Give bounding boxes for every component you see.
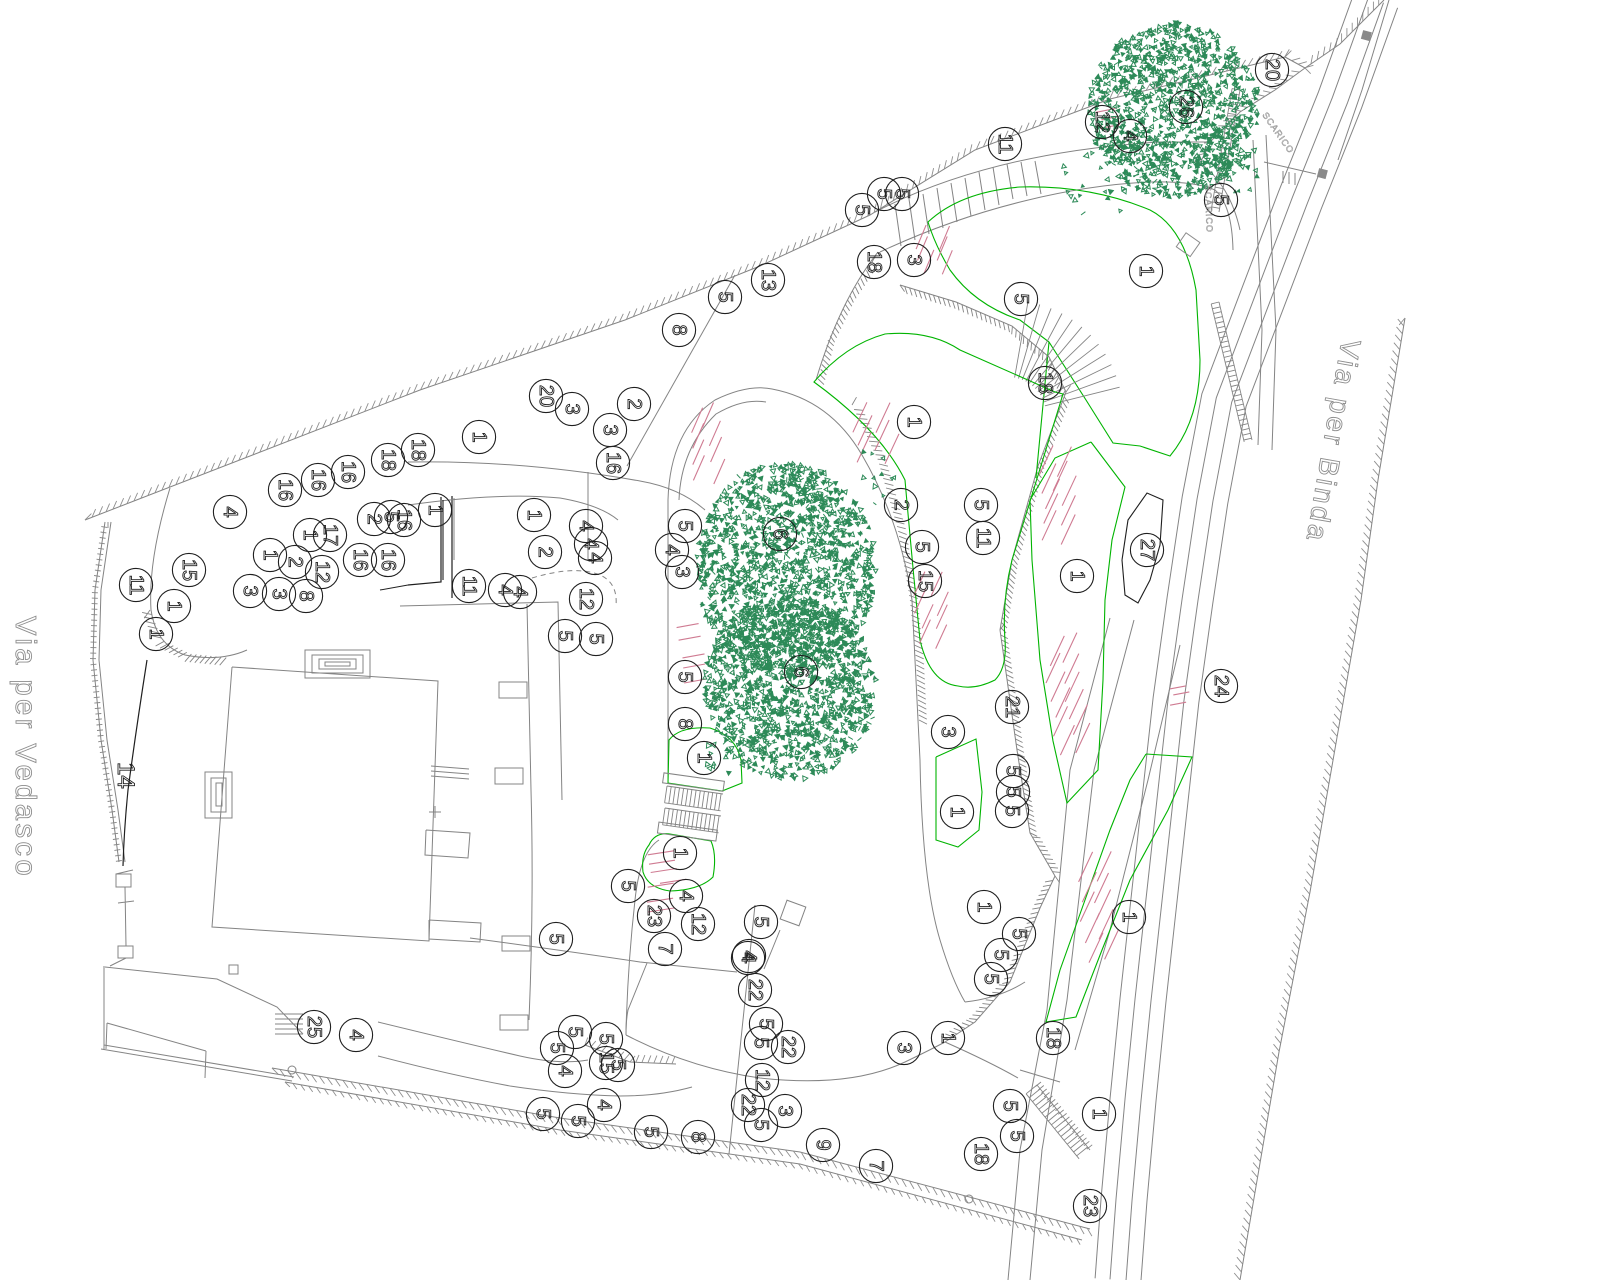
- svg-text:11: 11: [125, 575, 147, 596]
- svg-text:16: 16: [393, 509, 415, 531]
- svg-text:5: 5: [546, 1042, 568, 1053]
- svg-text:3: 3: [903, 254, 925, 265]
- svg-text:8: 8: [674, 718, 696, 729]
- svg-text:3: 3: [937, 726, 959, 737]
- svg-text:4: 4: [509, 586, 531, 597]
- svg-text:18: 18: [970, 1143, 992, 1165]
- svg-text:22: 22: [737, 1094, 759, 1116]
- svg-text:4: 4: [219, 506, 241, 517]
- svg-text:16: 16: [602, 452, 624, 474]
- svg-text:21: 21: [1001, 696, 1023, 718]
- svg-text:23: 23: [643, 905, 665, 927]
- svg-text:3: 3: [774, 1105, 796, 1116]
- svg-text:4: 4: [737, 952, 759, 963]
- svg-text:1: 1: [669, 847, 691, 858]
- svg-text:26: 26: [1175, 96, 1197, 118]
- svg-text:17: 17: [319, 524, 341, 546]
- svg-text:7: 7: [865, 1160, 887, 1171]
- svg-text:1: 1: [523, 509, 545, 520]
- svg-text:1: 1: [468, 431, 490, 442]
- svg-text:6: 6: [769, 528, 791, 539]
- svg-text:8: 8: [295, 590, 317, 601]
- svg-text:9: 9: [812, 1139, 834, 1150]
- svg-text:20: 20: [1261, 59, 1283, 81]
- svg-text:4: 4: [345, 1029, 367, 1040]
- svg-text:5: 5: [545, 933, 567, 944]
- svg-text:1: 1: [937, 1032, 959, 1043]
- svg-text:5: 5: [567, 1115, 589, 1126]
- svg-text:5: 5: [1002, 786, 1024, 797]
- svg-text:23: 23: [1079, 1195, 1101, 1217]
- svg-text:5: 5: [714, 291, 736, 302]
- svg-text:5: 5: [1210, 194, 1232, 205]
- svg-text:18: 18: [1034, 372, 1056, 394]
- svg-text:16: 16: [274, 479, 296, 501]
- svg-text:14: 14: [112, 762, 139, 789]
- svg-text:27: 27: [1136, 539, 1158, 561]
- svg-text:5: 5: [990, 949, 1012, 960]
- svg-text:8: 8: [668, 324, 690, 335]
- svg-text:12: 12: [1091, 111, 1113, 133]
- svg-text:12: 12: [687, 913, 709, 935]
- svg-text:1: 1: [693, 752, 715, 763]
- svg-text:1: 1: [424, 504, 446, 515]
- svg-text:1: 1: [1066, 570, 1088, 581]
- svg-text:5: 5: [1010, 293, 1032, 304]
- svg-text:15: 15: [178, 559, 200, 581]
- svg-text:11: 11: [972, 528, 994, 549]
- svg-text:Via per Vedasco: Via per Vedasco: [9, 616, 41, 879]
- svg-text:16: 16: [337, 461, 359, 483]
- svg-text:25: 25: [303, 1016, 325, 1038]
- svg-text:1: 1: [1135, 265, 1157, 276]
- svg-text:18: 18: [407, 439, 429, 461]
- svg-text:18: 18: [377, 449, 399, 471]
- svg-text:1: 1: [163, 600, 185, 611]
- svg-text:5: 5: [640, 1126, 662, 1137]
- svg-text:5: 5: [532, 1108, 554, 1119]
- svg-text:5: 5: [617, 880, 639, 891]
- svg-text:22: 22: [744, 979, 766, 1001]
- svg-text:5: 5: [554, 630, 576, 641]
- svg-text:5: 5: [999, 1100, 1021, 1111]
- svg-text:5: 5: [595, 1033, 617, 1044]
- svg-text:5: 5: [750, 916, 772, 927]
- svg-text:5: 5: [755, 1018, 777, 1029]
- svg-text:SCARICO: SCARICO: [1203, 185, 1215, 233]
- svg-text:16: 16: [377, 549, 399, 571]
- svg-text:5: 5: [911, 541, 933, 552]
- svg-text:1: 1: [946, 806, 968, 817]
- svg-text:2: 2: [534, 546, 556, 557]
- svg-text:4: 4: [584, 552, 606, 563]
- svg-text:1: 1: [1088, 1108, 1110, 1119]
- svg-text:5: 5: [674, 520, 696, 531]
- svg-text:1: 1: [903, 416, 925, 427]
- svg-text:8: 8: [687, 1131, 709, 1142]
- svg-text:7: 7: [654, 943, 676, 954]
- svg-text:15: 15: [914, 570, 936, 592]
- svg-text:16: 16: [307, 469, 329, 491]
- svg-text:3: 3: [561, 403, 583, 414]
- svg-text:3: 3: [268, 588, 290, 599]
- svg-text:2: 2: [623, 398, 645, 409]
- svg-text:1: 1: [145, 628, 167, 639]
- svg-text:4: 4: [593, 1099, 615, 1110]
- svg-text:11: 11: [458, 576, 480, 597]
- svg-text:5: 5: [585, 633, 607, 644]
- svg-text:5: 5: [873, 188, 895, 199]
- svg-text:5: 5: [1002, 765, 1024, 776]
- svg-text:4: 4: [575, 520, 597, 531]
- svg-text:1: 1: [1118, 911, 1140, 922]
- svg-text:13: 13: [757, 269, 779, 291]
- svg-text:18: 18: [1042, 1027, 1064, 1049]
- svg-text:11: 11: [994, 134, 1016, 155]
- svg-text:5: 5: [980, 973, 1002, 984]
- svg-text:6: 6: [790, 666, 812, 677]
- svg-text:12: 12: [751, 1069, 773, 1091]
- svg-text:12: 12: [575, 588, 597, 610]
- svg-text:1: 1: [973, 901, 995, 912]
- svg-text:4: 4: [661, 544, 683, 555]
- svg-text:16: 16: [349, 549, 371, 571]
- svg-text:1: 1: [259, 549, 281, 560]
- svg-text:5: 5: [1008, 928, 1030, 939]
- svg-text:3: 3: [239, 585, 261, 596]
- svg-text:18: 18: [863, 251, 885, 273]
- svg-text:5: 5: [750, 1037, 772, 1048]
- svg-text:5: 5: [607, 1059, 629, 1070]
- svg-text:3: 3: [671, 566, 693, 577]
- svg-text:12: 12: [311, 561, 333, 583]
- svg-text:3: 3: [599, 424, 621, 435]
- svg-text:4: 4: [580, 538, 602, 549]
- svg-text:5: 5: [970, 499, 992, 510]
- svg-text:22: 22: [777, 1036, 799, 1058]
- svg-text:5: 5: [674, 671, 696, 682]
- svg-text:5: 5: [750, 1119, 772, 1130]
- svg-text:4: 4: [554, 1065, 576, 1076]
- svg-text:5: 5: [1001, 805, 1023, 816]
- svg-text:1: 1: [299, 529, 321, 540]
- svg-text:20: 20: [535, 385, 557, 407]
- svg-text:5: 5: [1006, 1130, 1028, 1141]
- svg-text:24: 24: [1210, 675, 1232, 697]
- svg-text:5: 5: [851, 204, 873, 215]
- svg-text:4: 4: [1119, 130, 1141, 141]
- svg-text:2: 2: [890, 499, 912, 510]
- svg-text:5: 5: [564, 1026, 586, 1037]
- svg-text:3: 3: [893, 1042, 915, 1053]
- svg-text:2: 2: [284, 556, 306, 567]
- svg-text:4: 4: [675, 890, 697, 901]
